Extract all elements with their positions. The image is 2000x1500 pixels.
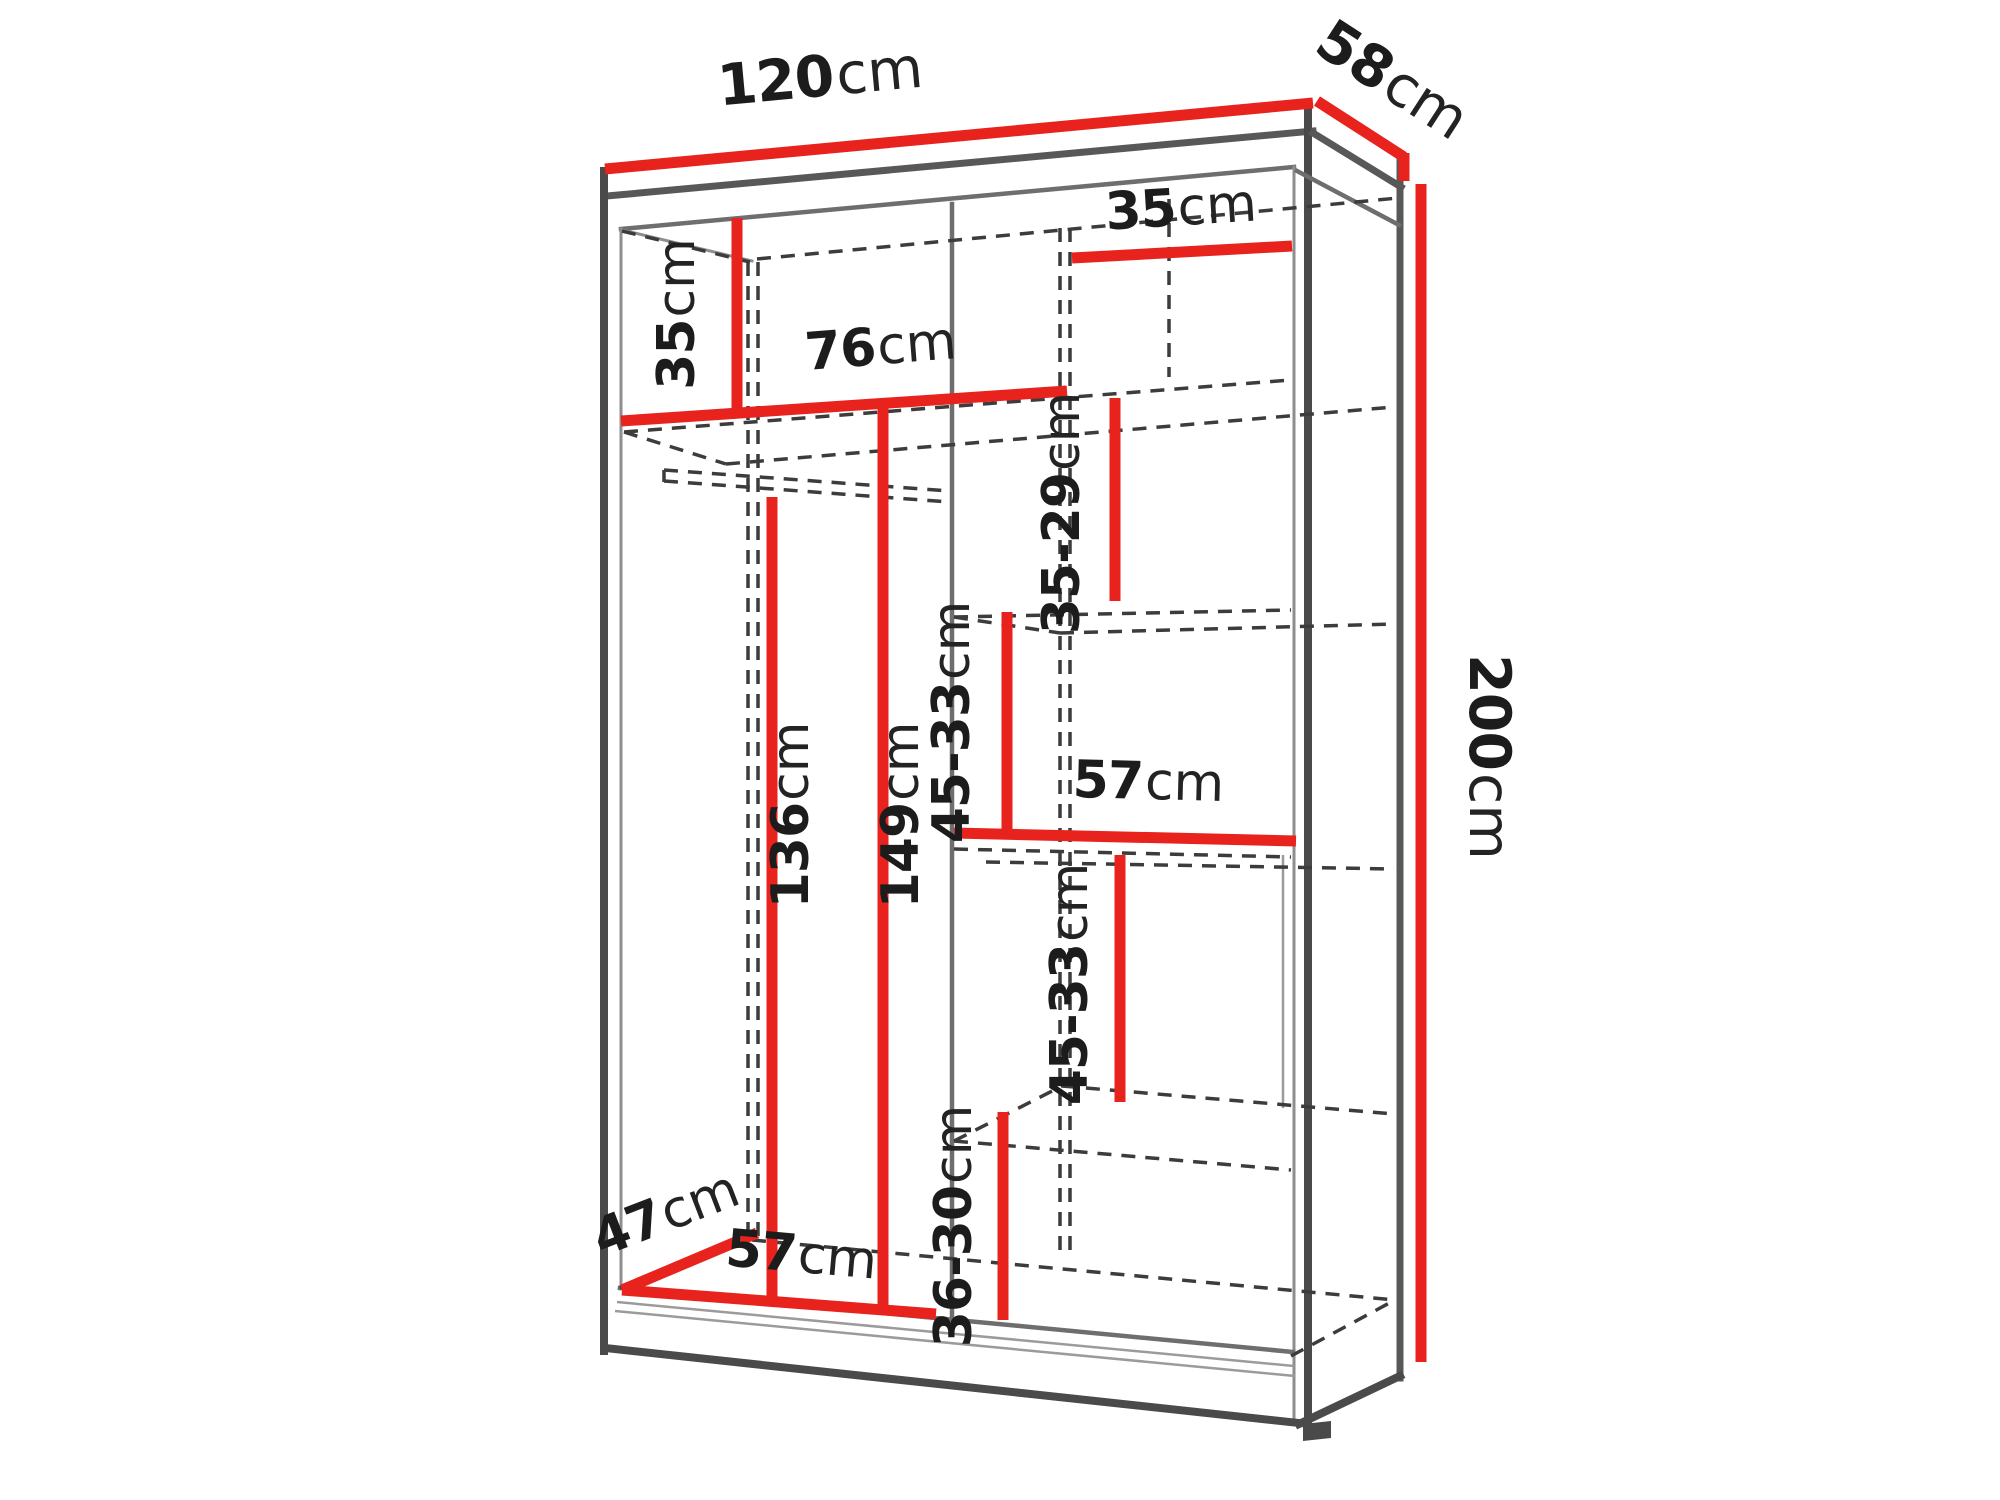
- dim-label-middle-shelf: 57cm: [1072, 750, 1225, 814]
- dim-label-top-width: 120cm: [715, 35, 926, 120]
- dim-label-gap-top: 35-29cm: [1032, 392, 1092, 635]
- dim-label-top-depth: 58cm: [1304, 7, 1480, 153]
- hanging-rod-top: [664, 470, 950, 491]
- diagram-svg: 120cm 58cm 200cm 35cm 76cm 35cm 35-29cm …: [0, 0, 2000, 1500]
- dim-label-gap-upper: 45-33cm: [922, 601, 982, 844]
- hanging-rod-bottom: [664, 481, 950, 502]
- dim-label-left-width: 76cm: [803, 311, 959, 383]
- foot-block: [1303, 1421, 1331, 1441]
- dim-label-left-top-shelf: 35cm: [647, 238, 707, 390]
- dimension-line-bottom-shelf-57: [622, 1290, 936, 1314]
- top-shelf-depth-edge: [624, 432, 726, 464]
- shelf2-back-edge: [1060, 624, 1394, 633]
- dimension-line-top-width-120: [605, 103, 1313, 169]
- wardrobe-dimension-diagram: 120cm 58cm 200cm 35cm 76cm 35cm 35-29cm …: [0, 0, 2000, 1500]
- dim-label-bottom-shelf: 57cm: [723, 1219, 879, 1292]
- dim-label-right-top-shelf: 35cm: [1103, 173, 1258, 242]
- dim-label-gap-bottom: 36-30cm: [924, 1105, 984, 1348]
- dimension-labels: 120cm 58cm 200cm 35cm 76cm 35cm 35-29cm …: [584, 7, 1522, 1347]
- dimension-line-middle-shelf-57: [954, 833, 1296, 841]
- side-panel-bottom-edge: [1299, 1376, 1400, 1424]
- dim-label-height: 200cm: [1456, 654, 1522, 860]
- plinth-bottom-edge: [605, 1348, 1299, 1423]
- shelf4-back-edge: [1062, 1086, 1394, 1114]
- dim-label-hanging-height: 136cm: [761, 722, 821, 909]
- dimension-line-right-top-shelf-35: [1072, 246, 1292, 258]
- dim-label-gap-lower: 45-33cm: [1040, 863, 1100, 1106]
